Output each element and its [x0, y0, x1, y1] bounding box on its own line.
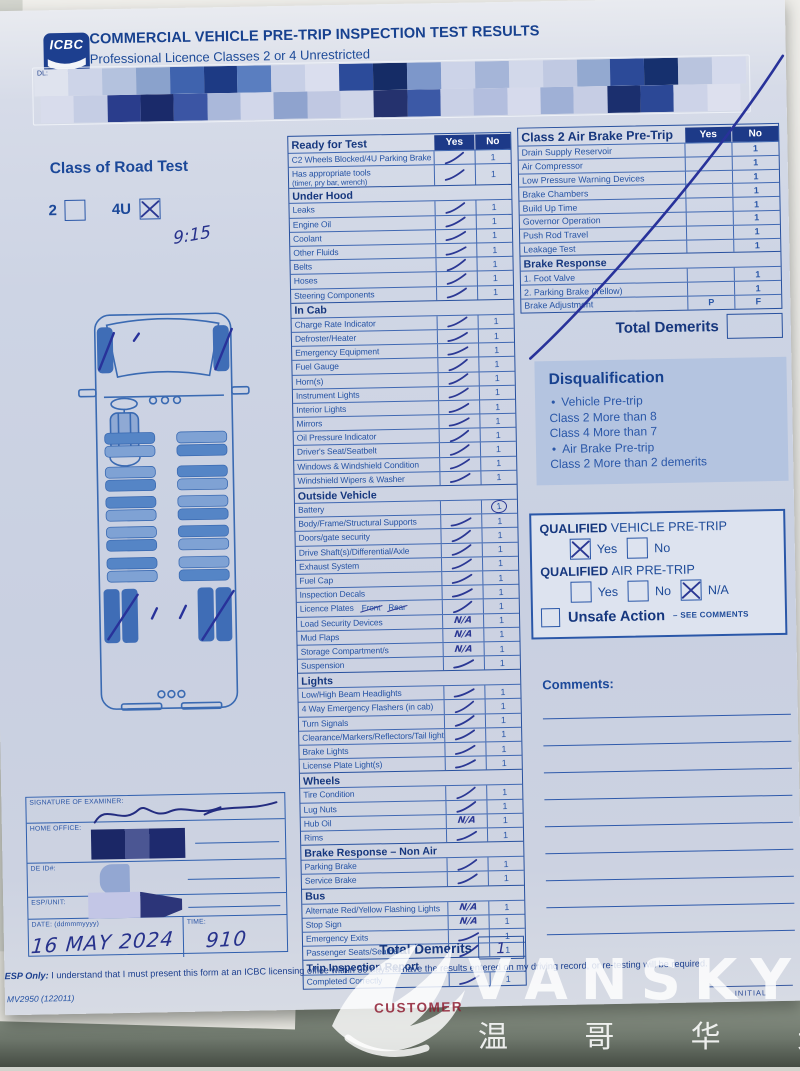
yes-cell: [441, 543, 482, 557]
pen-check-mark: [454, 786, 479, 800]
demerit-value: 1: [502, 758, 507, 768]
pen-check-mark: [443, 201, 468, 214]
no-cell: 1: [732, 170, 779, 184]
yes-cell: N/A: [446, 814, 487, 828]
pen-check-mark: [447, 387, 471, 399]
row-label: Turn Signals: [299, 715, 444, 731]
no-cell: 1: [476, 243, 512, 257]
yes-cell: N/A: [448, 915, 489, 929]
yes-cell: [438, 415, 479, 429]
form-paper: ICBC COMMERCIAL VEHICLE PRE-TRIP INSPECT…: [0, 0, 800, 1015]
yes-cell: [436, 286, 477, 300]
qualified-bold: QUALIFIED: [539, 521, 611, 536]
pen-check-mark: [453, 729, 477, 741]
no-cell: 1: [477, 271, 513, 285]
pen-check-mark: [453, 743, 477, 756]
road-test-option-label: 4U: [112, 201, 131, 218]
qualified-title: QUALIFIED VEHICLE PRE-TRIP: [539, 518, 775, 536]
row-label: Emergency Equipment: [292, 344, 437, 360]
disqualification-item: Class 2 More than 2 demerits: [550, 453, 788, 473]
yes-cell: [687, 268, 734, 282]
no-cell: 1: [490, 972, 526, 986]
no-cell: 1: [734, 281, 781, 295]
unsafe-action-suffix: – SEE COMMENTS: [673, 610, 749, 620]
no-cell: 1: [482, 542, 518, 556]
demerit-value: 1: [501, 729, 506, 739]
dl-field-label: DL:: [37, 70, 48, 77]
pen-check-mark: [450, 558, 474, 570]
demerit-value: 1: [491, 152, 496, 162]
pen-x-mark: [569, 538, 592, 559]
demerit-value: 1: [505, 916, 510, 926]
slashed-word: Front: [362, 604, 381, 614]
yes-cell: [684, 143, 731, 157]
row-label: Hub Oil: [301, 815, 446, 831]
row-label: Instrument Lights: [293, 387, 438, 403]
pen-check-mark: [444, 244, 469, 258]
qualified-option-label: No: [654, 540, 670, 554]
no-cell: 1: [475, 200, 511, 214]
row-label: Oil Pressure Indicator: [294, 429, 439, 445]
pen-check-mark: [444, 257, 469, 271]
qualified-rest: VEHICLE PRE-TRIP: [611, 519, 727, 535]
qualified-option-label: Yes: [597, 584, 618, 598]
yes-cell: [685, 170, 732, 184]
yes-cell: [439, 429, 480, 443]
qualified-options: YesNo: [570, 535, 776, 560]
yes-cell: [441, 586, 482, 600]
no-cell: F: [734, 295, 781, 309]
row-label: Licence PlatesFrontRear: [297, 601, 442, 617]
demerit-value: 1: [497, 530, 502, 540]
disqualification-title: Disqualification: [549, 367, 787, 389]
yes-cell: [435, 244, 476, 258]
demerit-value: 1: [494, 345, 499, 355]
handwritten-note: 9:15: [173, 225, 212, 246]
row-label: Defroster/Heater: [292, 330, 437, 346]
demerit-value: 1: [500, 687, 505, 697]
no-cell: 1: [482, 571, 518, 585]
no-cell: 1: [481, 528, 517, 542]
qualified-checkbox: [627, 537, 648, 558]
pen-check-mark: [452, 700, 477, 714]
demerit-value: 1: [492, 231, 497, 241]
no-cell: 1: [733, 211, 780, 225]
dl-field-frame: [32, 54, 751, 125]
na-mark: N/A: [459, 917, 478, 927]
no-cell: 1: [479, 386, 515, 400]
bus-top-view-diagram: [58, 298, 276, 722]
no-cell: 1: [480, 471, 516, 485]
pen-check-mark: [449, 543, 474, 556]
row-label: C2 Wheels Blocked/4U Parking Brake: [289, 151, 434, 167]
row-label: Mirrors: [293, 415, 438, 431]
demerit-value: 1: [495, 387, 500, 397]
row-label: Doors/gate security: [295, 530, 440, 546]
total-demerits-value: 1: [496, 939, 506, 957]
pen-check-mark: [444, 216, 468, 228]
demerit-value: 1: [492, 259, 497, 269]
row-label: Belts: [290, 258, 435, 274]
row-label: Battery: [295, 501, 440, 517]
row-label: Charge Rate Indicator: [292, 316, 437, 332]
yes-cell: [439, 471, 480, 485]
yes-cell: [449, 973, 490, 987]
qualified-checkbox: [681, 579, 702, 600]
yes-cell: [685, 198, 732, 212]
no-cell: 1: [480, 442, 516, 456]
demerit-value: 1: [494, 331, 499, 341]
no-cell: 1: [732, 156, 779, 170]
qualified-option: No: [627, 537, 670, 559]
air-brake-total: Total Demerits: [521, 313, 783, 343]
row-label: Lug Nuts: [300, 801, 445, 817]
qualified-option-label: Yes: [597, 541, 618, 555]
row-label: Load Security Devices: [297, 615, 442, 631]
row-label: Drive Shaft(s)/Differential/Axle: [296, 544, 441, 560]
pen-x-mark: [138, 198, 161, 219]
write-line: [195, 841, 279, 844]
write-line: [188, 877, 280, 880]
yes-cell: [440, 500, 481, 514]
row-label: Brake Adjustment: [521, 298, 687, 311]
demerit-value: 1: [493, 287, 498, 297]
pen-check-mark: [448, 443, 473, 456]
road-test-checkbox: [65, 200, 86, 221]
yes-cell: N/A: [447, 901, 488, 915]
comments-lines: [542, 688, 794, 936]
qualified-option: Yes: [570, 581, 618, 603]
yes-cell: [434, 201, 475, 215]
na-mark: N/A: [454, 644, 473, 654]
air-brake-section: Class 2 Air Brake Pre-Trip Yes No Drain …: [517, 123, 783, 343]
road-test-option-label: 2: [48, 202, 57, 219]
air-brake-total-box: [727, 313, 783, 339]
no-cell: 1: [480, 428, 516, 442]
demerit-value: 1: [491, 499, 508, 514]
pen-check-mark: [444, 272, 469, 285]
air-brake-table: Class 2 Air Brake Pre-Trip Yes No Drain …: [517, 123, 782, 314]
row-label: Clearance/Markers/Reflectors/Tail lights: [299, 729, 444, 745]
pen-check-mark: [455, 829, 479, 842]
demerit-value: 1: [493, 273, 498, 283]
no-cell: 1: [485, 713, 521, 727]
yes-cell: N/A: [442, 614, 483, 628]
no-cell: 1: [486, 785, 522, 799]
pen-check-mark: [442, 150, 467, 164]
date-time-row: DATE: (ddmmmyyyy) 16 MAY 2024 TIME: 910: [29, 915, 288, 960]
row-label: Fuel Gauge: [292, 359, 437, 375]
demerit-value: 1: [499, 615, 504, 625]
pen-check-mark: [455, 858, 480, 871]
yes-cell: [439, 457, 480, 471]
unsafe-action-label: Unsafe Action: [568, 608, 665, 626]
home-office-label: HOME OFFICE:: [30, 825, 82, 833]
pen-check-mark: [456, 872, 480, 884]
column-header-yes: Yes: [434, 134, 474, 150]
demerit-value: 1: [494, 316, 499, 326]
demerit-value: 1: [501, 715, 506, 725]
yes-cell: [445, 800, 486, 814]
qualified-options: YesNoN/A: [570, 578, 776, 603]
bullet-icon: •: [552, 442, 556, 456]
na-mark: N/A: [457, 816, 476, 826]
demerit-value: 1: [498, 573, 503, 583]
no-cell: 1: [478, 329, 514, 343]
row-label: Leaks: [289, 202, 434, 218]
row-label: Brake Lights: [299, 743, 444, 759]
row-label: Hoses: [291, 273, 436, 289]
row-label: Tire Condition: [300, 787, 445, 803]
pen-check-mark: [446, 330, 470, 343]
disqualification-text: Class 2 More than 2 demerits: [550, 455, 707, 472]
yes-cell: [442, 600, 483, 614]
no-cell: 1: [734, 267, 781, 281]
row-label: Exhaust System: [296, 558, 441, 574]
demerit-value: 1: [504, 873, 509, 883]
pen-check-mark: [448, 472, 472, 485]
disqualification-text: Air Brake Pre-trip: [562, 440, 654, 456]
disqualification-items: •Vehicle Pre-tripClass 2 More than 8Clas…: [549, 391, 788, 473]
date-value: 16 MAY 2024: [30, 927, 175, 959]
initial-line: INITIAL: [709, 985, 793, 999]
no-cell: 1: [483, 613, 519, 627]
disqualification-text: Class 2 More than 8: [549, 409, 657, 425]
pen-check-mark: [449, 529, 474, 543]
yes-cell: [435, 229, 476, 243]
row-label: Fuel Cap: [296, 572, 441, 588]
pen-check-mark: [452, 686, 477, 700]
row-label: Rims: [301, 829, 446, 845]
demerit-value: 1: [498, 558, 503, 568]
yes-cell: [685, 184, 732, 198]
pen-check-mark: [447, 415, 472, 429]
demerit-value: 1: [500, 658, 505, 668]
yes-cell: [437, 329, 478, 343]
row-label: Inspection Decals: [297, 586, 442, 602]
no-cell: 1: [475, 164, 511, 185]
row-label: Has appropriate tools(timer, pry bar, wr…: [289, 165, 434, 188]
yes-cell: [443, 657, 484, 671]
yes-cell: [443, 686, 484, 700]
no-cell: 1: [478, 315, 514, 329]
no-cell: 1: [482, 585, 518, 599]
no-cell: 1: [477, 285, 513, 299]
no-cell: 1: [483, 599, 519, 613]
no-cell: 1: [487, 814, 523, 828]
row-label: Horn(s): [293, 373, 438, 389]
no-cell: 1: [487, 857, 523, 871]
write-line: [188, 905, 280, 908]
qualified-option-label: No: [655, 583, 671, 597]
de-id-row: DE ID#:: [27, 859, 286, 898]
row-label: Mud Flaps: [297, 629, 442, 645]
na-mark: N/A: [454, 630, 473, 640]
no-cell: 1: [486, 756, 522, 770]
redacted-de-id: [100, 864, 131, 895]
photo-of-form: { "header": { "logo_text": "ICBC", "titl…: [0, 0, 800, 1067]
demerit-value: 1: [491, 169, 496, 179]
pen-check-mark: [449, 515, 474, 529]
pen-check-mark: [454, 800, 479, 813]
qualified-option: Yes: [570, 538, 618, 560]
comment-line: [546, 904, 794, 936]
unsafe-action-row: Unsafe Action – SEE COMMENTS: [541, 604, 777, 627]
column-header-no: No: [475, 134, 510, 150]
air-brake-title: Class 2 Air Brake Pre-Trip: [518, 126, 684, 146]
slashed-word: Rear: [388, 603, 406, 613]
pen-check-mark: [447, 428, 472, 442]
yes-cell: [446, 828, 487, 842]
no-cell: 1: [487, 828, 523, 842]
qualified-option: N/A: [681, 579, 729, 601]
demerit-value: 1: [496, 430, 501, 440]
demerit-value: 1: [492, 216, 497, 226]
redacted-esp-unit: [88, 892, 140, 919]
no-cell: 1: [482, 557, 518, 571]
time-value: 910: [205, 926, 248, 952]
no-cell: 1: [731, 142, 778, 156]
demerit-value: 1: [491, 202, 496, 212]
yes-cell: [441, 571, 482, 585]
no-cell: 1: [485, 699, 521, 713]
vehicle-checklist: Ready for TestYesNoC2 Wheels Blocked/4U …: [287, 132, 527, 990]
qualified-checkbox: [570, 581, 591, 602]
yes-cell: [447, 872, 488, 886]
demerit-value: 1: [498, 587, 503, 597]
row-label: Coolant: [290, 230, 435, 246]
no-cell: 1: [489, 914, 525, 928]
demerit-value: 1: [492, 245, 497, 255]
demerit-value: 1: [498, 544, 503, 554]
road-test-option: 4U: [112, 198, 161, 220]
no-cell: 1: [479, 414, 515, 428]
yes-cell: N/A: [442, 628, 483, 642]
demerit-value: 1: [495, 373, 500, 383]
vehicle-total-demerits: Total Demerits 1: [302, 936, 524, 963]
pen-check-mark: [446, 358, 471, 372]
yes-cell: [438, 372, 479, 386]
row-label: Parking Brake: [301, 858, 446, 874]
total-demerits-box: 1: [478, 936, 524, 960]
no-cell: 1: [479, 400, 515, 414]
no-cell: 1: [732, 197, 779, 211]
air-brake-col-yes: Yes: [685, 127, 731, 143]
yes-cell: [444, 714, 485, 728]
yes-cell: [438, 386, 479, 400]
demerit-value: 1: [494, 359, 499, 369]
air-brake-total-label: Total Demerits: [616, 318, 719, 337]
pen-check-mark: [453, 757, 478, 771]
date-label: DATE: (ddmmmyyyy): [32, 920, 100, 928]
demerit-value: 1: [497, 516, 502, 526]
pen-check-mark: [445, 287, 469, 299]
yes-cell: [446, 858, 487, 872]
no-cell: 1: [476, 214, 512, 228]
yes-cell: [685, 157, 732, 171]
disqualification-panel: Disqualification •Vehicle Pre-tripClass …: [534, 357, 788, 486]
class-of-road-test-title: Class of Road Test: [50, 158, 189, 179]
demerit-value: 1: [496, 472, 501, 482]
disqualification-text: Class 4 More than 7: [550, 424, 658, 440]
form-title: COMMERCIAL VEHICLE PRE-TRIP INSPECTION T…: [89, 21, 689, 48]
row-label: 4 Way Emergency Flashers (in cab): [299, 701, 444, 717]
demerit-value: 1: [504, 902, 509, 912]
yes-cell: [440, 529, 481, 543]
redacted-esp-unit-2: [140, 891, 182, 918]
yes-cell: [444, 700, 485, 714]
section-title: Ready for Test: [288, 134, 433, 153]
yes-cell: [435, 215, 476, 229]
row-label: Service Brake: [302, 872, 447, 888]
row-label: Steering Components: [291, 287, 436, 303]
no-cell: 1: [733, 238, 780, 252]
qualified-option: No: [628, 580, 671, 602]
form-number: MV2950 (122011): [7, 993, 75, 1004]
demerit-value: 1: [502, 801, 507, 811]
yes-cell: [435, 258, 476, 272]
pen-check-mark: [447, 401, 471, 414]
yes-cell: [438, 400, 479, 414]
yes-cell: [441, 557, 482, 571]
demerit-value: 1: [496, 444, 501, 454]
no-cell: 1: [485, 728, 521, 742]
esp-declaration-lead: ESP Only:: [4, 970, 48, 981]
no-cell: 1: [478, 343, 514, 357]
yes-cell: [445, 757, 486, 771]
no-cell: 1: [480, 456, 516, 470]
de-id-label: DE ID#:: [31, 865, 56, 872]
yes-cell: [434, 150, 475, 164]
pen-check-mark: [450, 586, 475, 600]
no-cell: 1: [481, 514, 517, 528]
demerit-value: 1: [501, 744, 506, 754]
pen-check-mark: [448, 458, 472, 470]
pen-check-mark: [458, 973, 482, 986]
demerit-value: 1: [502, 787, 507, 797]
no-cell: 1: [484, 656, 520, 670]
demerit-value: 1: [506, 974, 511, 984]
no-cell: 1: [732, 183, 779, 197]
pen-check-mark: [450, 572, 474, 585]
esp-unit-label: ESP/UNIT:: [31, 899, 65, 907]
date-cell: DATE: (ddmmmyyyy) 16 MAY 2024: [29, 917, 184, 960]
yes-cell: [445, 786, 486, 800]
yes-cell: [436, 272, 477, 286]
row-label: Completed Correctly: [304, 973, 449, 989]
row-label: Windows & Windshield Condition: [294, 458, 439, 474]
no-cell: 1: [479, 371, 515, 385]
road-test-checkbox: [139, 198, 160, 219]
air-brake-rows: Drain Supply Reservoir1Air Compressor1Lo…: [518, 141, 781, 313]
no-cell: 1: [476, 257, 512, 271]
yes-cell: [440, 515, 481, 529]
qualified-rest: AIR PRE-TRIP: [611, 563, 695, 579]
yes-cell: [437, 344, 478, 358]
yes-cell: [439, 443, 480, 457]
row-label: Body/Frame/Structural Supports: [295, 515, 440, 531]
no-cell: 1: [485, 742, 521, 756]
qualified-bold: QUALIFIED: [540, 564, 612, 579]
redacted-home-office: [91, 828, 186, 860]
row-label: Suspension: [298, 657, 443, 673]
demerit-value: 1: [503, 815, 508, 825]
disqualification-text: Vehicle Pre-trip: [561, 393, 643, 408]
row-label: License Plate Light(s): [300, 757, 445, 773]
demerit-value: 1: [499, 629, 504, 639]
yes-cell: [686, 226, 733, 240]
row-label: Interior Lights: [293, 401, 438, 417]
